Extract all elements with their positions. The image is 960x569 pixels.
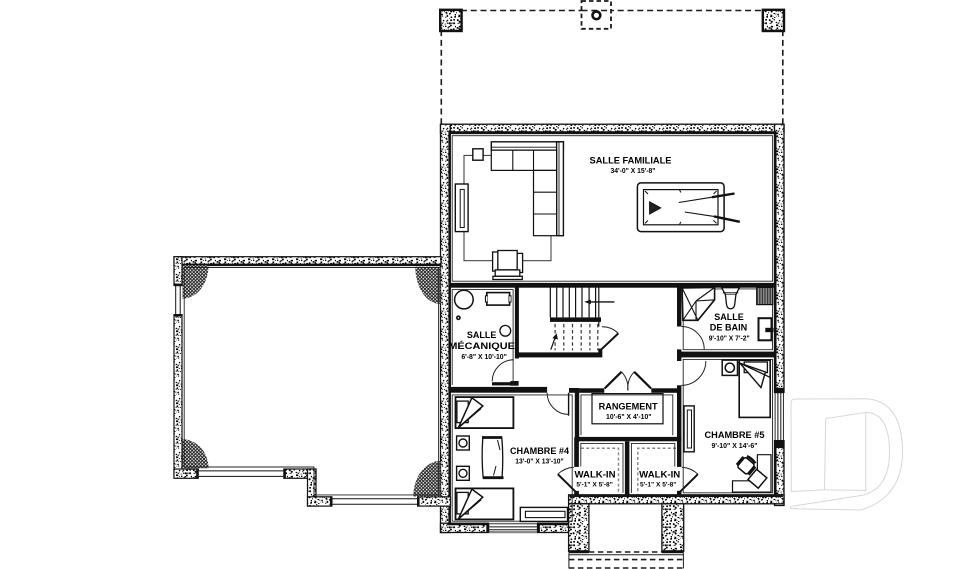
svg-text:5'-1" X 5'-8": 5'-1" X 5'-8" <box>576 482 613 489</box>
svg-text:RANGEMENT: RANGEMENT <box>599 402 658 413</box>
svg-text:DE BAIN: DE BAIN <box>710 323 748 334</box>
svg-text:SALLE: SALLE <box>467 330 497 341</box>
svg-text:9'-10" X 7'-2": 9'-10" X 7'-2" <box>709 334 750 343</box>
svg-text:WALK-IN: WALK-IN <box>639 469 680 479</box>
svg-text:SALLE FAMILIALE: SALLE FAMILIALE <box>590 155 673 166</box>
svg-text:10'-6" X 4'-10": 10'-6" X 4'-10" <box>606 412 652 421</box>
svg-text:34'-0" X 15'-8": 34'-0" X 15'-8" <box>611 166 656 175</box>
svg-text:5'-1" X 5'-8": 5'-1" X 5'-8" <box>640 482 677 489</box>
svg-text:13'-0" X 13'-10": 13'-0" X 13'-10" <box>515 457 564 466</box>
svg-text:9'-10" X 14'-6": 9'-10" X 14'-6" <box>712 441 758 450</box>
svg-text:CHAMBRE #4: CHAMBRE #4 <box>510 446 570 457</box>
svg-text:CHAMBRE #5: CHAMBRE #5 <box>705 430 766 441</box>
svg-text:WALK-IN: WALK-IN <box>575 469 616 479</box>
svg-text:MÉCANIQUE: MÉCANIQUE <box>448 340 515 352</box>
svg-text:SALLE: SALLE <box>714 312 744 323</box>
svg-text:6'-8" X 10'-10": 6'-8" X 10'-10" <box>461 352 507 361</box>
